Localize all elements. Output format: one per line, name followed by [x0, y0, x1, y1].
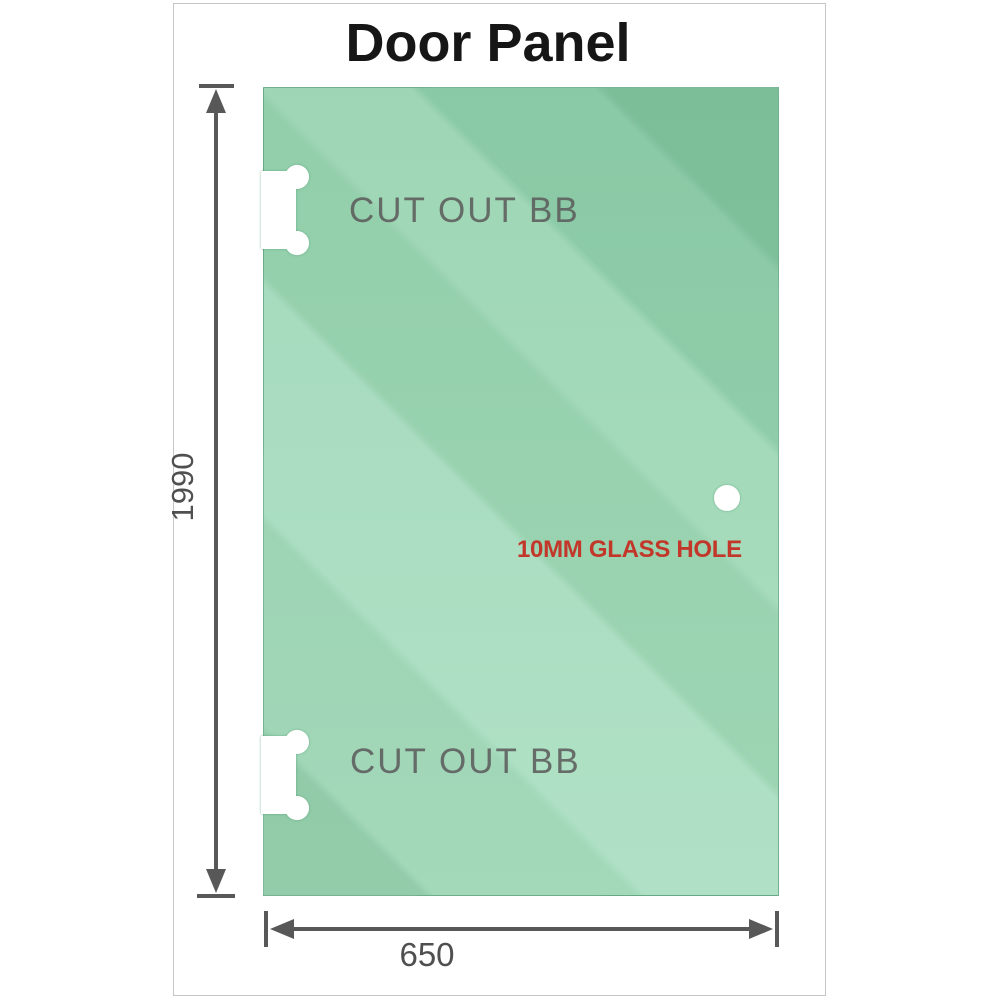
diagram-canvas: Door Panel 199	[0, 0, 1000, 1000]
cutout-label-bottom: CUT OUT BB	[350, 742, 581, 782]
width-dimension-label: 650	[399, 936, 454, 974]
diagram-title: Door Panel	[173, 12, 803, 74]
cutout-label-top: CUT OUT BB	[349, 191, 580, 231]
height-dimension-label: 1990	[165, 453, 201, 522]
glass-hole-label: 10MM GLASS HOLE	[517, 536, 742, 564]
